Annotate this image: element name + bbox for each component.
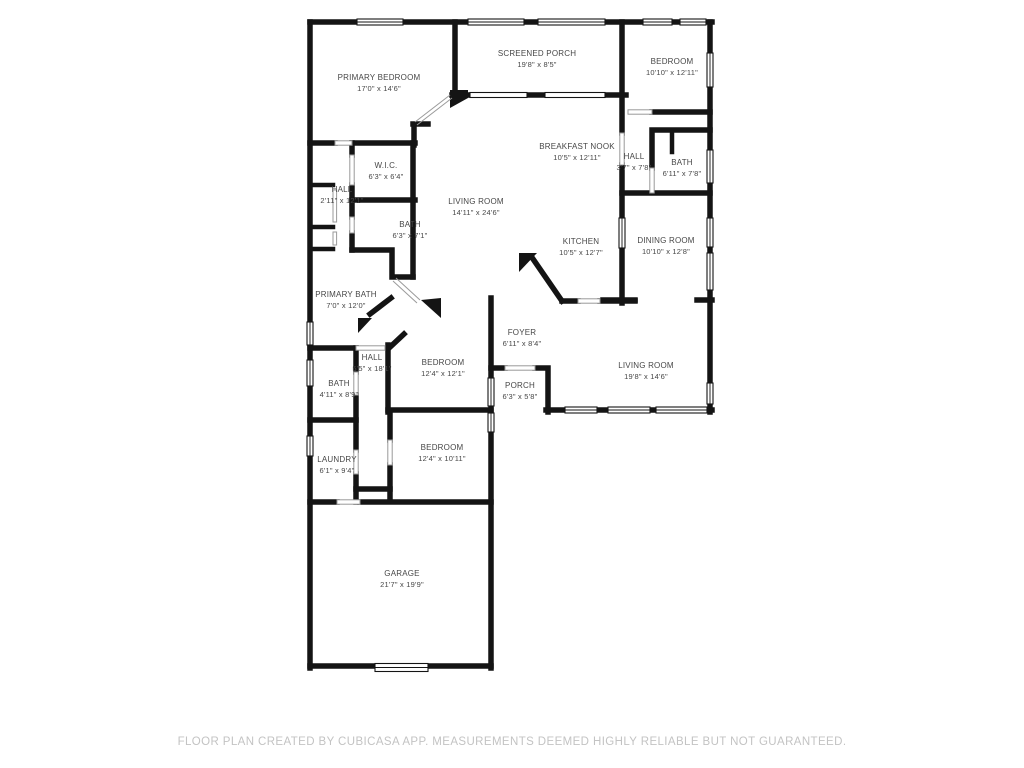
- walls: [310, 22, 712, 668]
- floor-plan-canvas: [0, 0, 1024, 768]
- wall-corner-fills: [358, 90, 537, 333]
- footer-disclaimer: FLOOR PLAN CREATED BY CUBICASA APP. MEAS…: [178, 736, 847, 748]
- floor-plan-page: PRIMARY BEDROOM17'0" x 14'6"SCREENED POR…: [0, 0, 1024, 768]
- windows: [307, 19, 713, 672]
